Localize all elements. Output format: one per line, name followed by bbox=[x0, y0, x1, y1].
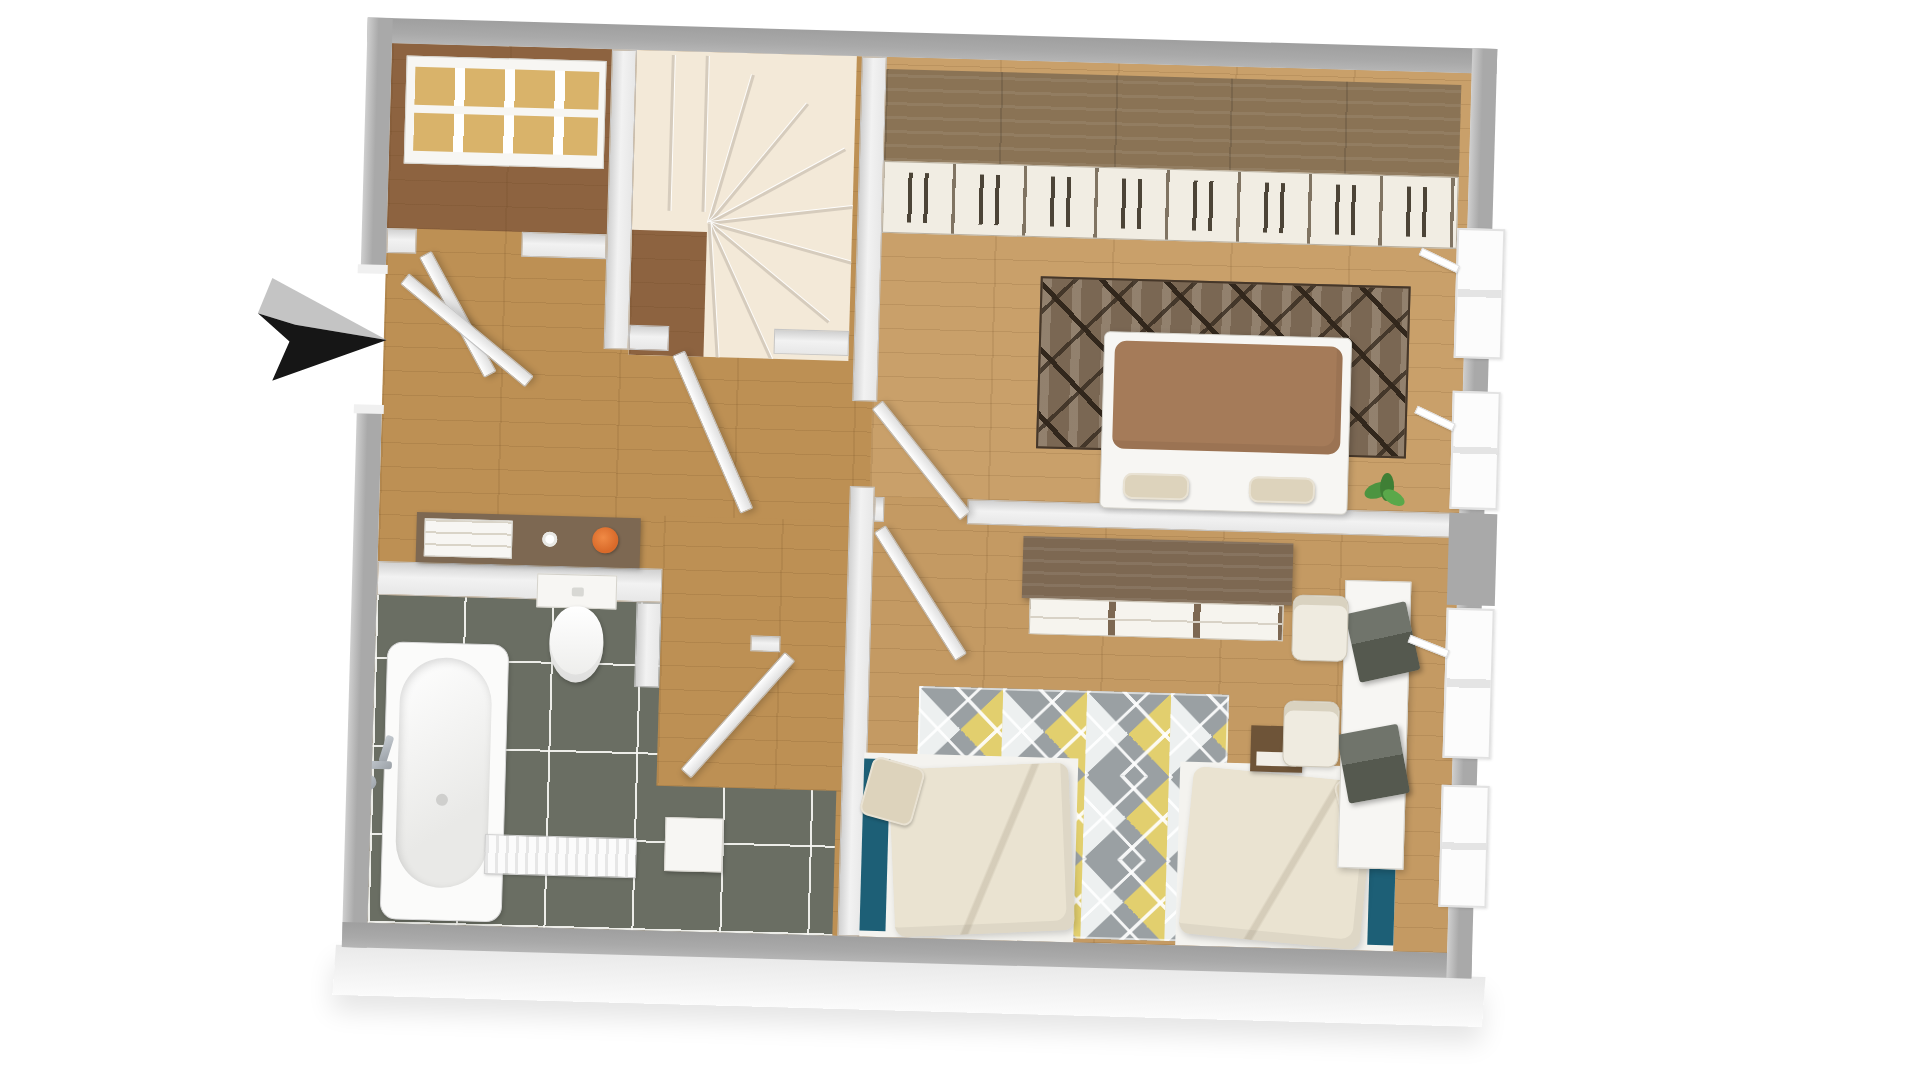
bathroom-door-frame bbox=[750, 635, 780, 652]
bedroom-window bbox=[1449, 391, 1500, 510]
bed-pillow bbox=[1249, 476, 1316, 504]
bathroom-right-wall bbox=[634, 602, 661, 688]
sideboard-top bbox=[1022, 536, 1294, 606]
stairs-bottom-wall bbox=[774, 329, 850, 356]
plant-leaf bbox=[1380, 486, 1407, 510]
staircase bbox=[628, 50, 856, 361]
stair-tread-edge bbox=[701, 56, 708, 212]
bed-pillow bbox=[1123, 473, 1190, 501]
bedroom-window bbox=[1454, 228, 1506, 359]
faucet-pipe bbox=[378, 735, 394, 764]
radiator bbox=[484, 834, 637, 878]
paper-roll bbox=[542, 531, 557, 546]
closet-bottom-wall bbox=[521, 232, 607, 259]
flush-button bbox=[572, 587, 584, 596]
single-bed-left bbox=[859, 753, 1078, 943]
wardrobe-door-handles bbox=[883, 172, 1459, 238]
desk-chair bbox=[1291, 594, 1349, 662]
desk-chair bbox=[1282, 700, 1340, 768]
stair-tread-edge bbox=[708, 223, 775, 361]
wall-pier bbox=[1447, 513, 1498, 606]
flower-pot bbox=[592, 527, 619, 554]
entry-jamb bbox=[358, 264, 388, 274]
toilet-cistern bbox=[536, 573, 617, 609]
stair-tread-edge bbox=[708, 103, 809, 224]
closet-shelving-unit bbox=[404, 56, 607, 170]
second-bedroom-window bbox=[1438, 785, 1489, 908]
second-bedroom-window bbox=[1443, 608, 1495, 759]
potted-plant bbox=[1359, 468, 1410, 519]
laptop bbox=[1337, 724, 1411, 804]
stair-tread-edge bbox=[708, 222, 829, 323]
wardrobe-top bbox=[884, 69, 1461, 177]
bed-duvet-brown bbox=[1112, 340, 1343, 454]
stair-tread-edge bbox=[709, 222, 857, 267]
console-drawer-unit bbox=[424, 518, 513, 558]
entry-jamb bbox=[354, 404, 384, 414]
entrance-arrow-icon bbox=[251, 275, 389, 384]
bedroom-kidsroom-wall bbox=[874, 497, 885, 522]
stair-tread-edge bbox=[709, 205, 857, 225]
floor-plan-page bbox=[0, 0, 1920, 1080]
hall-console bbox=[416, 512, 641, 568]
storage-boxes-row bbox=[414, 67, 599, 110]
sideboard-drawers bbox=[1029, 598, 1284, 641]
bathroom-nook-floor bbox=[656, 516, 848, 791]
stair-tread-edge bbox=[667, 55, 674, 211]
stairs-bottom-wall bbox=[629, 325, 670, 351]
floor-plan bbox=[285, 11, 1553, 1055]
storage-boxes-row bbox=[413, 113, 598, 156]
closet-bottom-wall bbox=[386, 228, 417, 254]
double-bed bbox=[1099, 331, 1352, 515]
bathroom-cabinet bbox=[664, 817, 723, 873]
